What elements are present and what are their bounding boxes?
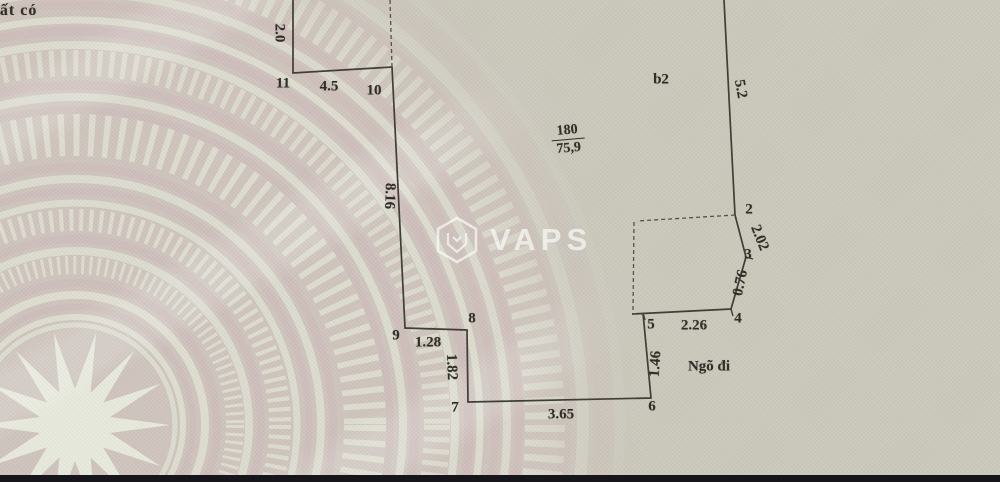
vaps-watermark: VAPS xyxy=(432,214,592,266)
parcel-number-area: 180 75,9 xyxy=(550,122,585,159)
hexagon-logo-icon xyxy=(432,214,482,266)
boundary-solid-line xyxy=(293,0,746,402)
scan-bottom-edge-bar xyxy=(0,475,1000,482)
parcel-area: 75,9 xyxy=(552,138,586,159)
vaps-watermark-text: VAPS xyxy=(490,222,592,258)
scanned-cadastral-map: đất có 2 3 4 5 6 7 8 9 10 11 5.2 2.02 0.… xyxy=(0,0,1000,482)
